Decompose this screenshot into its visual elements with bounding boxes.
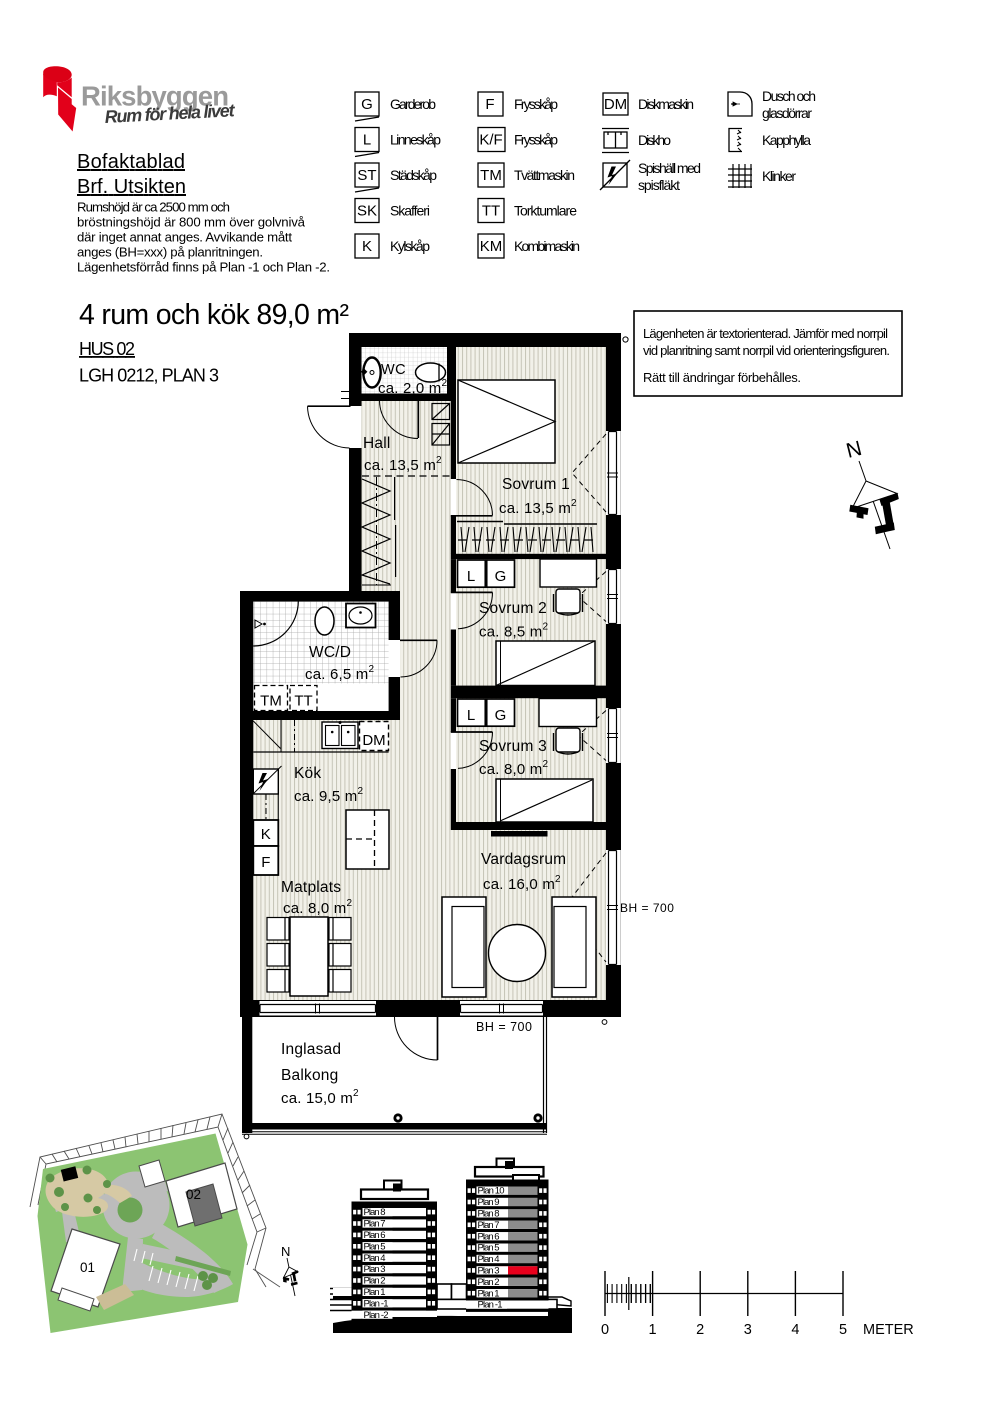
svg-text:Plan 2: Plan 2 xyxy=(478,1277,500,1288)
svg-text:Inglasad: Inglasad xyxy=(281,1041,341,1058)
svg-text:Kapphylla: Kapphylla xyxy=(762,132,811,148)
svg-text:där inget annat anges. Avvikan: där inget annat anges. Avvikande mått xyxy=(77,230,292,245)
svg-text:K: K xyxy=(362,238,372,255)
svg-text:Bofaktablad: Bofaktablad xyxy=(77,151,185,173)
svg-text:Plan -1: Plan -1 xyxy=(364,1298,389,1309)
svg-text:Rumshöjd är ca 2500 mm och: Rumshöjd är ca 2500 mm och xyxy=(77,200,230,215)
svg-text:Vardagsrum: Vardagsrum xyxy=(481,851,566,868)
svg-text:Kök: Kök xyxy=(294,765,321,782)
svg-text:Sovrum 1: Sovrum 1 xyxy=(502,476,570,493)
svg-text:Hall: Hall xyxy=(363,435,391,452)
svg-text:Frysskåp: Frysskåp xyxy=(514,96,558,112)
svg-text:G: G xyxy=(495,568,507,585)
svg-text:4: 4 xyxy=(791,1322,799,1338)
svg-text:BH = 700: BH = 700 xyxy=(476,1020,532,1034)
svg-text:Garderob: Garderob xyxy=(390,96,436,112)
svg-text:Skafferi: Skafferi xyxy=(390,203,430,219)
svg-text:Plan 4: Plan 4 xyxy=(478,1254,500,1265)
svg-text:Lägenhetsförråd finns på Plan: Lägenhetsförråd finns på Plan -1 och Pla… xyxy=(77,260,330,275)
svg-text:Sovrum 3: Sovrum 3 xyxy=(479,738,547,755)
svg-text:ca. 16,0 m2: ca. 16,0 m2 xyxy=(483,874,561,893)
svg-text:0: 0 xyxy=(601,1322,609,1338)
svg-text:Balkong: Balkong xyxy=(281,1067,338,1084)
svg-text:Tvättmaskin: Tvättmaskin xyxy=(514,167,575,183)
svg-text:TT: TT xyxy=(482,203,500,220)
svg-text:TM: TM xyxy=(260,693,282,710)
svg-text:Plan 8: Plan 8 xyxy=(478,1209,500,1220)
svg-text:Kylskåp: Kylskåp xyxy=(390,238,430,254)
svg-text:Klinker: Klinker xyxy=(762,168,796,184)
svg-text:ca. 13,5 m2: ca. 13,5 m2 xyxy=(499,498,577,517)
svg-text:Plan 4: Plan 4 xyxy=(364,1253,386,1264)
svg-text:ca. 13,5 m2: ca. 13,5 m2 xyxy=(364,455,442,474)
svg-text:spisfläkt: spisfläkt xyxy=(638,177,680,193)
svg-text:Plan 8: Plan 8 xyxy=(364,1207,386,1218)
svg-text:HUS 02: HUS 02 xyxy=(79,339,135,359)
svg-text:BH = 700: BH = 700 xyxy=(620,901,674,915)
svg-text:TT: TT xyxy=(294,693,312,710)
svg-text:ca. 8,0 m2: ca. 8,0 m2 xyxy=(283,898,353,917)
svg-text:F: F xyxy=(261,854,270,871)
svg-text:Plan 10: Plan 10 xyxy=(478,1186,505,1197)
svg-text:Sovrum 2: Sovrum 2 xyxy=(479,600,547,617)
svg-text:G: G xyxy=(495,707,507,724)
svg-text:Torktumlare: Torktumlare xyxy=(514,203,577,219)
svg-text:3: 3 xyxy=(744,1322,752,1338)
svg-text:Plan 3: Plan 3 xyxy=(364,1264,386,1275)
svg-text:F: F xyxy=(485,96,494,113)
svg-text:Plan 1: Plan 1 xyxy=(364,1287,386,1298)
svg-text:L: L xyxy=(363,132,371,149)
svg-text:ca. 15,0 m2: ca. 15,0 m2 xyxy=(281,1088,359,1107)
svg-text:Plan 9: Plan 9 xyxy=(478,1197,500,1208)
svg-text:Linneskåp: Linneskåp xyxy=(390,132,441,148)
svg-text:L: L xyxy=(467,707,475,724)
svg-text:glasdörrar: glasdörrar xyxy=(762,105,812,121)
svg-text:Plan 7: Plan 7 xyxy=(478,1220,500,1231)
svg-text:KM: KM xyxy=(480,238,503,255)
svg-text:Plan 2: Plan 2 xyxy=(364,1276,386,1287)
svg-text:1: 1 xyxy=(649,1322,657,1338)
svg-text:01: 01 xyxy=(80,1260,95,1275)
svg-text:Matplats: Matplats xyxy=(281,879,341,896)
svg-text:Rätt till ändringar förbehålle: Rätt till ändringar förbehålles. xyxy=(643,370,801,385)
svg-text:METER: METER xyxy=(863,1322,914,1338)
svg-text:Plan 1: Plan 1 xyxy=(478,1288,500,1299)
svg-text:Lägenheten är textorienterad.: Lägenheten är textorienterad. Jämför med… xyxy=(643,326,888,341)
svg-text:Frysskåp: Frysskåp xyxy=(514,132,558,148)
svg-text:K: K xyxy=(261,826,271,843)
svg-text:DM: DM xyxy=(362,732,385,749)
svg-text:5: 5 xyxy=(839,1322,847,1338)
svg-text:Plan 5: Plan 5 xyxy=(478,1243,500,1254)
svg-text:Plan 6: Plan 6 xyxy=(364,1230,386,1241)
svg-text:K/F: K/F xyxy=(479,132,502,149)
svg-text:Diskho: Diskho xyxy=(638,132,671,148)
svg-text:ca. 8,0 m2: ca. 8,0 m2 xyxy=(479,759,549,778)
svg-text:ca. 8,5 m2: ca. 8,5 m2 xyxy=(479,622,549,641)
svg-text:Kombimaskin: Kombimaskin xyxy=(514,238,580,254)
svg-text:Dusch och: Dusch och xyxy=(762,88,816,104)
svg-text:Spishäll med: Spishäll med xyxy=(638,160,701,176)
svg-text:4 rum och kök 89,0 m²: 4 rum och kök 89,0 m² xyxy=(79,299,349,331)
svg-text:Brf. Utsikten: Brf. Utsikten xyxy=(77,176,186,198)
svg-text:ca. 9,5 m2: ca. 9,5 m2 xyxy=(294,786,364,805)
svg-text:TM: TM xyxy=(480,167,502,184)
svg-text:LGH 0212, PLAN 3: LGH 0212, PLAN 3 xyxy=(79,366,219,386)
svg-text:anges (BH=xxx) på planritninge: anges (BH=xxx) på planritningen. xyxy=(77,245,263,260)
svg-text:G: G xyxy=(361,96,373,113)
svg-text:Plan 5: Plan 5 xyxy=(364,1241,386,1252)
svg-text:ca. 2,0 m2: ca. 2,0 m2 xyxy=(378,378,448,397)
svg-text:2: 2 xyxy=(696,1322,704,1338)
svg-text:N: N xyxy=(281,1244,290,1259)
svg-text:Plan -1: Plan -1 xyxy=(478,1300,503,1311)
svg-text:WC: WC xyxy=(381,362,406,378)
svg-text:L: L xyxy=(467,568,475,585)
svg-text:Plan 6: Plan 6 xyxy=(478,1231,500,1242)
svg-text:02: 02 xyxy=(186,1187,201,1202)
svg-text:Städskåp: Städskåp xyxy=(390,167,437,183)
svg-text:DM: DM xyxy=(604,96,627,113)
svg-text:SK: SK xyxy=(357,203,377,220)
svg-text:Plan 7: Plan 7 xyxy=(364,1219,386,1230)
svg-text:WC/D: WC/D xyxy=(309,644,351,661)
svg-text:Plan 3: Plan 3 xyxy=(478,1266,500,1277)
svg-text:Plan -2: Plan -2 xyxy=(364,1310,389,1321)
svg-text:ST: ST xyxy=(357,167,376,184)
svg-text:ca. 6,5 m2: ca. 6,5 m2 xyxy=(305,664,375,683)
svg-text:Diskmaskin: Diskmaskin xyxy=(638,96,694,112)
svg-text:bröstningshöjd är 800 mm över: bröstningshöjd är 800 mm över golvnivå xyxy=(77,215,306,230)
svg-text:vid planritning samt norrpil v: vid planritning samt norrpil vid oriente… xyxy=(643,343,890,358)
